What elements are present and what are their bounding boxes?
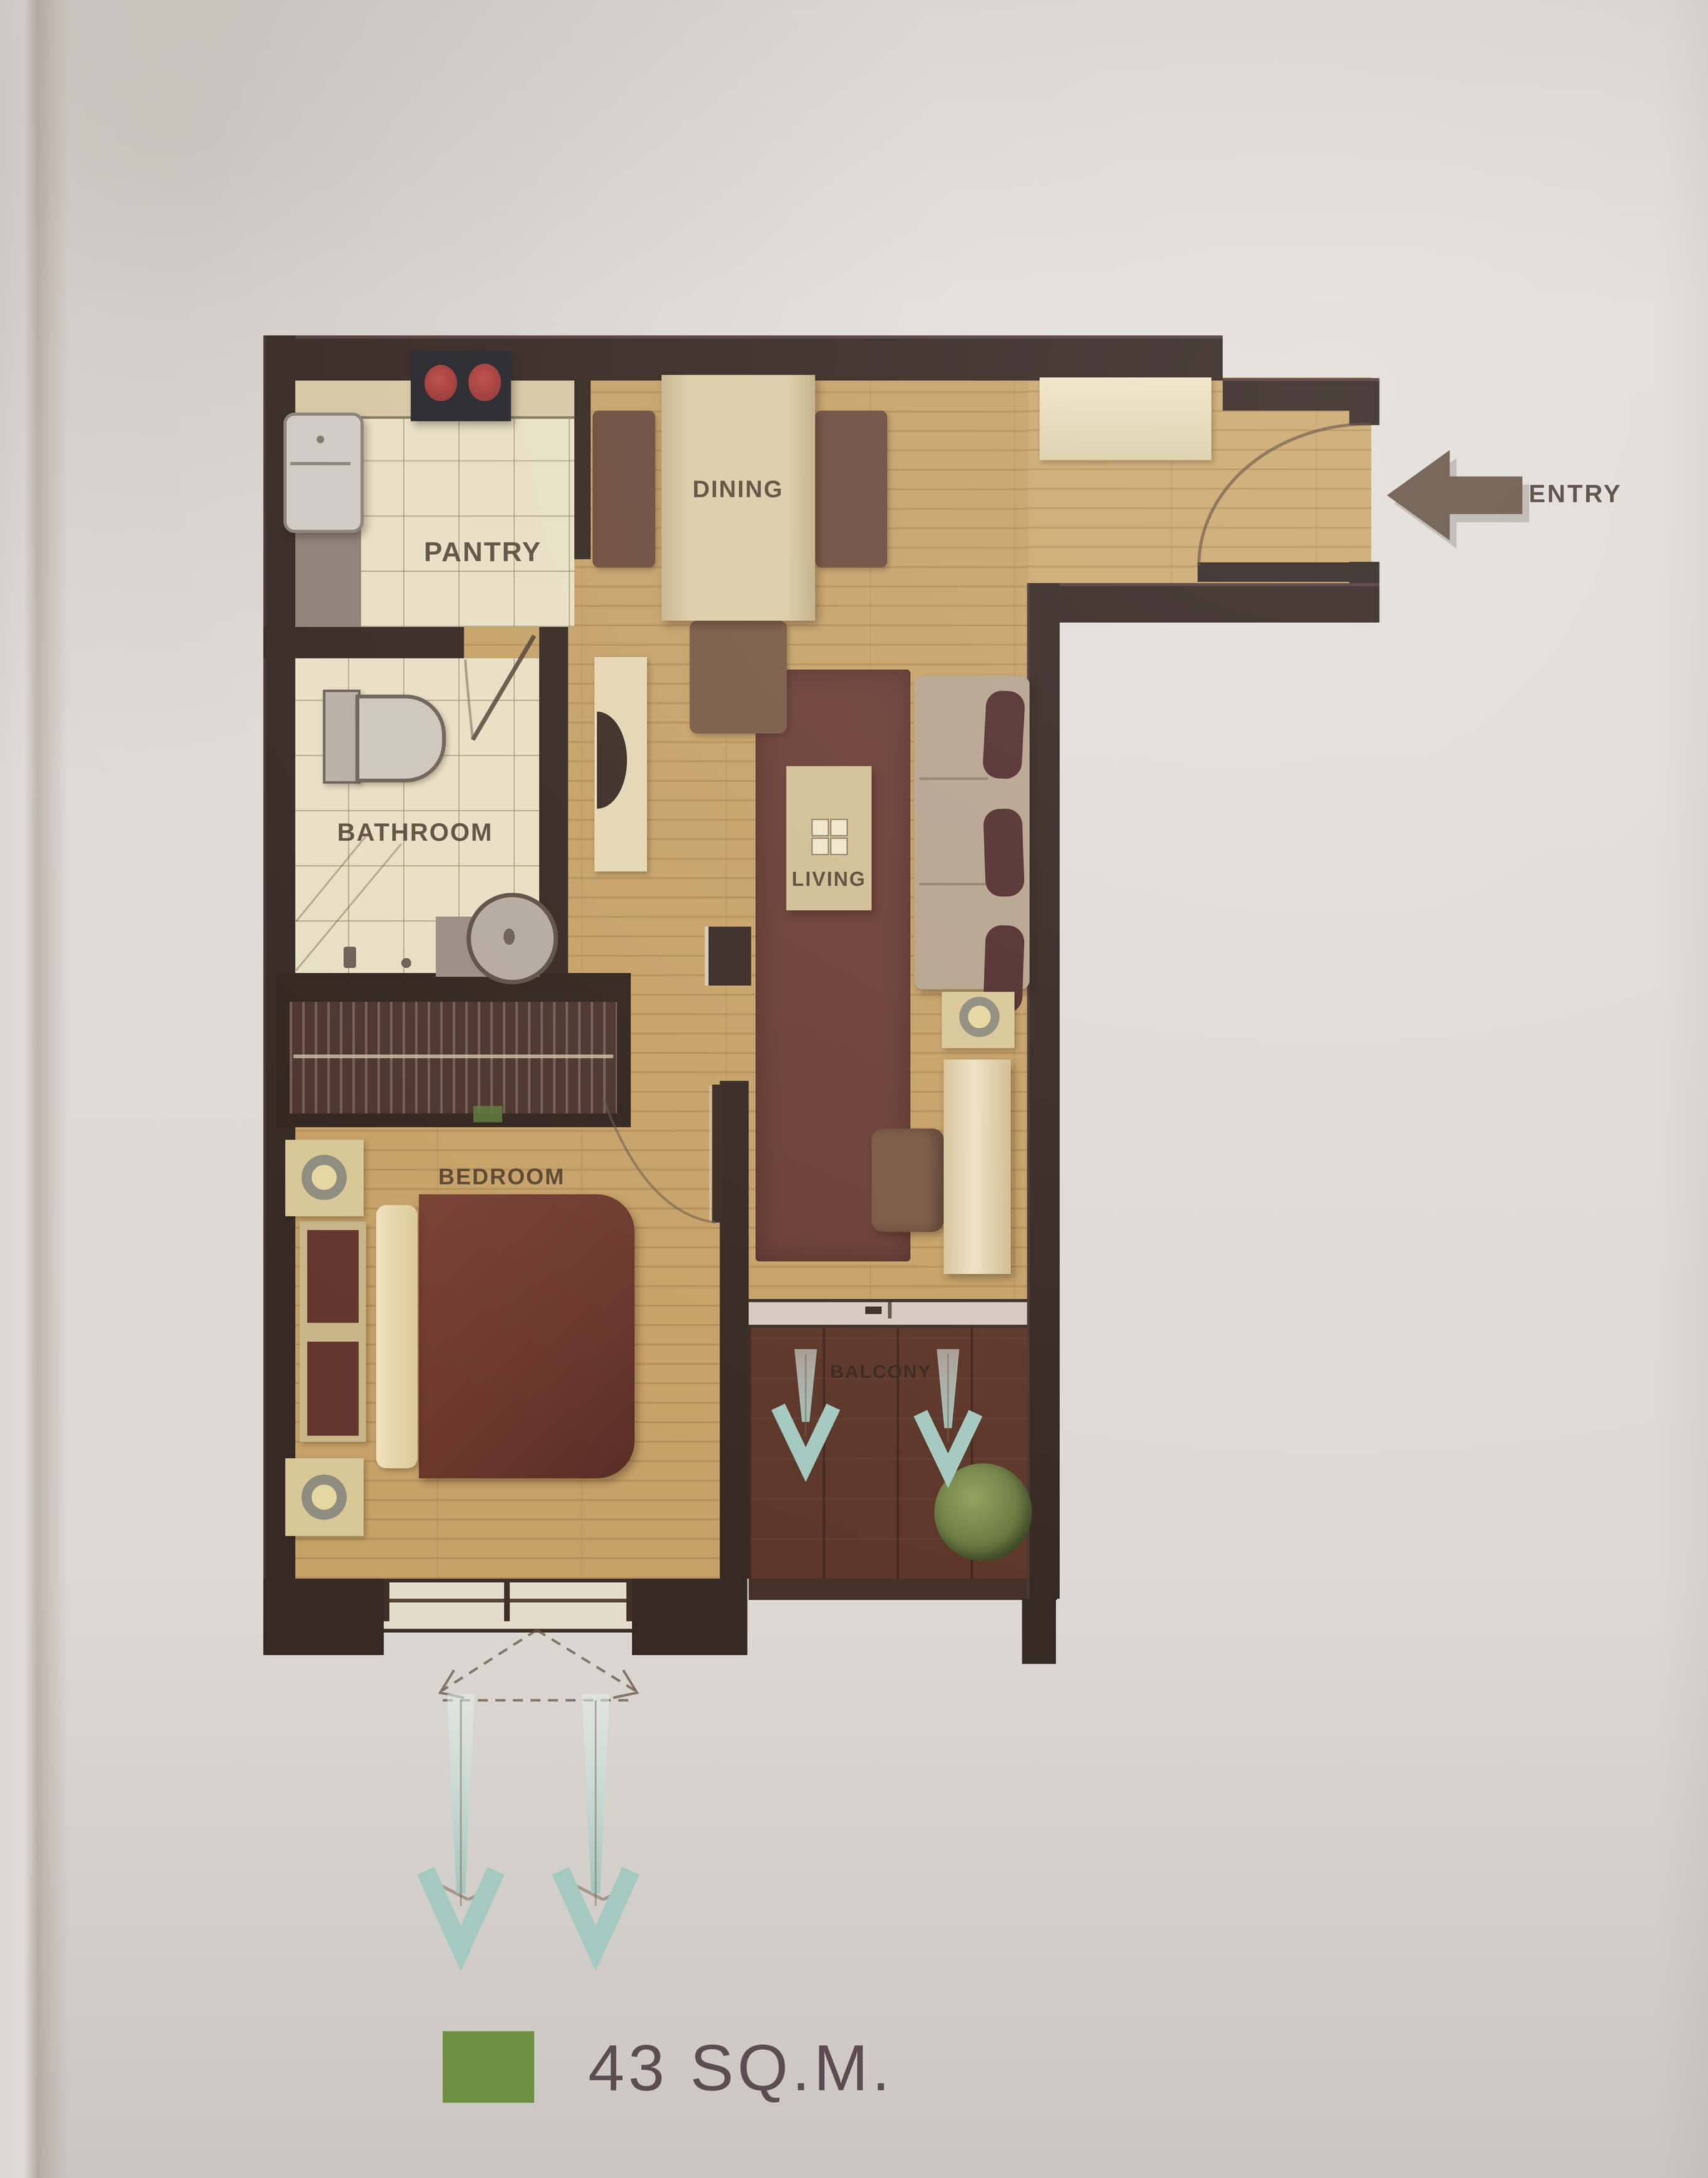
- wardrobe-rod: [293, 1055, 613, 1058]
- bed: [419, 1194, 635, 1478]
- room-label-balcony: BALCONY: [793, 1362, 969, 1383]
- wall-pantry-right: [574, 376, 591, 559]
- desk: [944, 1060, 1011, 1274]
- entry-arrow-icon: [1387, 450, 1522, 540]
- sofa-pillow-1: [982, 690, 1025, 779]
- bedroom-window-mullion-mid: [504, 1582, 510, 1621]
- photo-of-floor-plan-page: { "plan": { "rooms": { "dining": {"label…: [0, 0, 1708, 2178]
- sink-basin-icon: [467, 893, 558, 984]
- lamp-icon: [302, 1155, 347, 1200]
- floor-plan-scene: DINING PANTRY BATHROOM BEDROOM LIVING BA…: [0, 0, 1708, 2178]
- entry-door-leaf: [1198, 562, 1371, 582]
- bedroom-window-mullion-right: [626, 1582, 632, 1621]
- stove-icon: [411, 351, 511, 421]
- wardrobe-garment-green: [473, 1106, 502, 1122]
- wardrobe: [276, 973, 631, 1127]
- toilet-bowl: [356, 695, 446, 782]
- tray-pane: [830, 838, 848, 855]
- sink-drain-dot: [503, 929, 515, 945]
- lamp-icon: [302, 1475, 347, 1520]
- entry-console: [1040, 377, 1211, 460]
- wall-balcony-right-stub: [1022, 1599, 1056, 1664]
- sofa: [914, 676, 1030, 989]
- legend-green-swatch: [443, 2031, 534, 2103]
- wall-bedroom-partition: [720, 1081, 749, 1579]
- lamp-icon: [959, 997, 999, 1037]
- window-swing-arrowhead-left: [440, 1670, 464, 1698]
- vent-arrow-icon-bedroom-right: [561, 1694, 633, 1949]
- vent-arrow-icon-bedroom-left: [426, 1694, 498, 1949]
- entry-label: ENTRY: [1529, 480, 1622, 508]
- fridge-freezer-divider: [290, 462, 351, 465]
- room-label-dining: DINING: [663, 476, 813, 503]
- tray-pane: [811, 819, 829, 836]
- sliding-door-handle: [865, 1307, 882, 1314]
- sofa-pillow-2: [983, 808, 1025, 897]
- wall-bottom-right: [632, 1579, 747, 1655]
- fridge-icon: [283, 413, 364, 533]
- dining-bench-right: [815, 411, 887, 567]
- desk-chair: [872, 1128, 944, 1232]
- room-label-bathroom: BATHROOM: [302, 819, 528, 847]
- coffee-table-tray-icon: [811, 819, 846, 854]
- bedroom-window: [384, 1579, 632, 1633]
- stove-burner-right: [468, 364, 501, 401]
- tv-icon: [597, 712, 627, 809]
- bed-headboard: [376, 1205, 418, 1468]
- hallway-cabinet: [705, 927, 751, 986]
- shower-head-icon: [344, 947, 356, 968]
- wall-corridor-bottom: [1041, 583, 1379, 623]
- sofa-seam-2: [919, 883, 988, 885]
- tray-pane: [830, 819, 848, 836]
- window-swing-arrowhead-right: [613, 1670, 637, 1698]
- wall-right-main: [1027, 583, 1060, 1599]
- room-label-pantry: PANTRY: [389, 537, 577, 568]
- dining-chair-bottom: [690, 621, 787, 734]
- sliding-door-seam: [888, 1302, 892, 1318]
- bedroom-window-mullion-left: [384, 1582, 389, 1621]
- dining-bench-left: [593, 411, 655, 567]
- sofa-seam-1: [919, 777, 988, 780]
- nightstand-bottom: [285, 1458, 364, 1536]
- wall-entry-right-jamb-top: [1349, 406, 1379, 425]
- wall-top-main: [263, 335, 1223, 381]
- toilet-icon: [323, 690, 361, 784]
- side-table-lamp: [942, 992, 1015, 1048]
- dresser-panel-top: [307, 1230, 359, 1323]
- wall-bathroom-top: [263, 627, 464, 658]
- room-label-living: LIVING: [779, 868, 879, 891]
- stove-burner-left: [424, 365, 457, 401]
- room-label-bedroom: BEDROOM: [389, 1164, 614, 1190]
- floor-drain-dot: [401, 958, 411, 968]
- legend-area-label: 43 SQ.M.: [588, 2031, 894, 2106]
- entry-arrow-shadow: [1394, 458, 1529, 549]
- bedroom-dresser: [300, 1221, 366, 1442]
- balcony-slab-edge: [749, 1579, 1057, 1600]
- window-swing-dashed: [443, 1630, 635, 1700]
- wall-bottom-left: [263, 1579, 384, 1655]
- tray-pane: [811, 838, 829, 855]
- nightstand-top: [285, 1140, 364, 1216]
- fridge-handle-dot: [317, 436, 324, 443]
- plant-icon: [934, 1463, 1032, 1561]
- balcony-sliding-door: [749, 1299, 1027, 1328]
- tv-console: [594, 657, 647, 871]
- dresser-panel-bottom: [307, 1342, 359, 1436]
